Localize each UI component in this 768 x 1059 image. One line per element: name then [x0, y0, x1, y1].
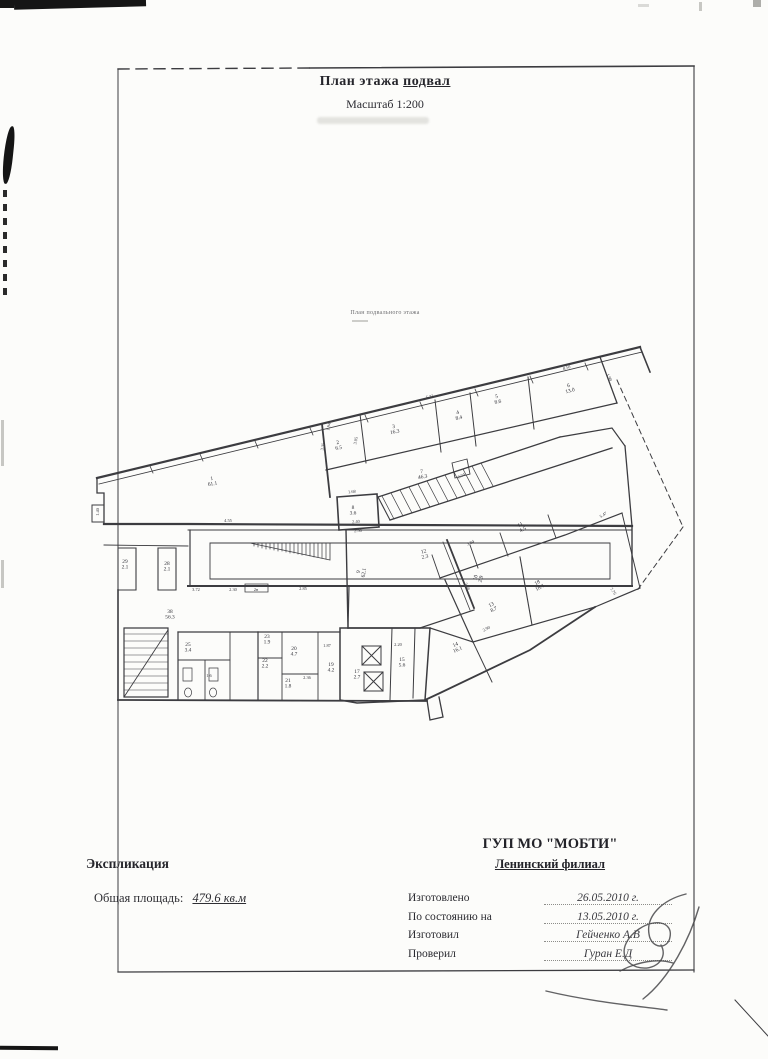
- scan-artifact-top-right-1: [753, 0, 761, 7]
- total-area-label: Общая площадь:: [94, 891, 183, 905]
- approval-block: Изготовлено 26.05.2010 г. По состоянию н…: [408, 892, 676, 966]
- dimension-label: 8.50: [562, 364, 572, 371]
- dimension-label: 3.84: [466, 538, 476, 546]
- dimension-label: 2.30: [229, 587, 237, 592]
- scan-artifact-left-mark-1: [1, 420, 4, 466]
- approval-row-issued: Изготовлено 26.05.2010 г.: [408, 892, 676, 911]
- approval-row-value: Гейченко А.В: [544, 929, 672, 942]
- room-label-1: 161.1: [207, 475, 218, 488]
- scan-smudge: [317, 117, 429, 124]
- dimension-label: 2.85: [299, 586, 307, 591]
- room-label-7: 746.3: [417, 468, 429, 481]
- room-label-28: 282.1: [164, 561, 171, 572]
- scan-artifact-top-bar: [14, 0, 146, 10]
- approval-row-label: Изготовлено: [408, 892, 470, 904]
- approval-row-label: По состоянию на: [408, 911, 492, 923]
- dimension-label: 1.87: [323, 643, 331, 648]
- approval-row-value: 26.05.2010 г.: [544, 892, 672, 905]
- dimension-label: 2.90: [482, 624, 492, 632]
- scan-artifact-bottom-line: [0, 1046, 58, 1051]
- dimension-label: 2н: [254, 587, 259, 592]
- dimension-label: 7.76: [609, 587, 618, 597]
- room-label-25: 253.4: [185, 642, 192, 653]
- approval-row-label: Проверил: [408, 948, 456, 960]
- scan-artifact-corner: [0, 0, 14, 8]
- dimension-label: 3.88: [463, 582, 471, 592]
- dimension-label: 5.47: [599, 510, 609, 519]
- total-area-value: 479.6 кв.м: [192, 891, 246, 905]
- approval-row-as-of: По состоянию на 13.05.2010 г.: [408, 911, 676, 930]
- room-label-23: 231.9: [264, 634, 271, 645]
- dimension-label: 2.20: [394, 642, 402, 647]
- dimension-label: 1.40: [95, 507, 100, 516]
- approval-row-label: Изготовил: [408, 929, 459, 941]
- room-label-11: 114.5: [516, 521, 528, 534]
- room-label-2: 26.5: [334, 439, 343, 451]
- room-label-14: 1416.1: [450, 640, 464, 654]
- page-title-main: План этажа: [320, 74, 400, 89]
- room-label-19: 194.2: [328, 662, 335, 673]
- room-label-15: 155.6: [399, 657, 406, 668]
- page-title-floor: подвал: [403, 74, 450, 89]
- scan-artifact-left-mark-2: [1, 560, 4, 588]
- dimension-label: 4.55: [224, 518, 232, 523]
- signature-stroke: [546, 991, 667, 1010]
- room-label-18: 1818.1: [532, 578, 546, 593]
- caption-underline-mark: [352, 320, 368, 322]
- scale-label: Масштаб 1:200: [150, 97, 620, 112]
- approval-row-value: Гуран Е.Д: [544, 948, 672, 961]
- room-label-8: 83.6: [350, 505, 357, 516]
- room-label-10: 102.9: [472, 573, 485, 583]
- scan-artifact-left-dashes: [3, 190, 7, 302]
- dimension-label: 1.90: [605, 373, 613, 383]
- page-title: План этажа подвал: [150, 74, 620, 90]
- dimension-label: 3.72: [192, 587, 200, 592]
- dimension-label: 2.56: [354, 528, 363, 533]
- room-label-9: 962.1: [355, 566, 368, 578]
- room-label-13: 138.7: [487, 601, 499, 614]
- approval-row-prepared-by: Изготовил Гейченко А.В: [408, 929, 676, 948]
- dimension-label: 2.36: [303, 675, 311, 680]
- plan-caption: План подвального этажа: [295, 310, 475, 316]
- room-label-38: 3856.3: [165, 609, 175, 620]
- room-label-5: 58.6: [493, 393, 502, 406]
- room-label-3: 316.3: [389, 423, 401, 436]
- scan-artifact-top-right-2: [699, 2, 702, 11]
- room-label-20: 204.7: [291, 646, 298, 657]
- dimension-label: 1.68: [348, 489, 357, 495]
- dimension-label: 3.05: [352, 436, 359, 445]
- approval-row-checked-by: Проверил Гуран Е.Д: [408, 948, 676, 967]
- scan-artifact-left-blob: [1, 126, 16, 185]
- dimension-label: 3.35: [319, 442, 326, 451]
- approval-row-value: 13.05.2010 г.: [544, 911, 672, 924]
- room-label-29: 292.1: [122, 559, 129, 570]
- scanned-floor-plan-page: План этажа подвал Масштаб 1:200 План под…: [0, 0, 768, 1059]
- dimension-label: 2.40: [352, 519, 361, 524]
- room-label-22: 222.2: [262, 658, 269, 669]
- room-label-6: 613.0: [563, 382, 575, 396]
- explication-heading: Экспликация: [86, 856, 169, 872]
- dimension-label: 8.04: [457, 471, 467, 479]
- room-label-4: 48.4: [454, 409, 463, 422]
- room-label-12: 122.3: [420, 548, 430, 561]
- branch-name: Ленинский филиал: [420, 857, 680, 872]
- room-label-17: 172.7: [354, 669, 361, 680]
- room-label-21: 211.8: [285, 678, 292, 689]
- organization-name: ГУП МО "МОБТИ": [420, 836, 680, 853]
- dimension-label: 1.94: [325, 422, 332, 431]
- scan-artifact-top-right-3: [638, 4, 649, 7]
- dimension-label: 5.32: [425, 393, 434, 400]
- dimension-label: 1.6: [206, 673, 212, 678]
- total-area-line: Общая площадь: 479.6 кв.м: [94, 891, 246, 906]
